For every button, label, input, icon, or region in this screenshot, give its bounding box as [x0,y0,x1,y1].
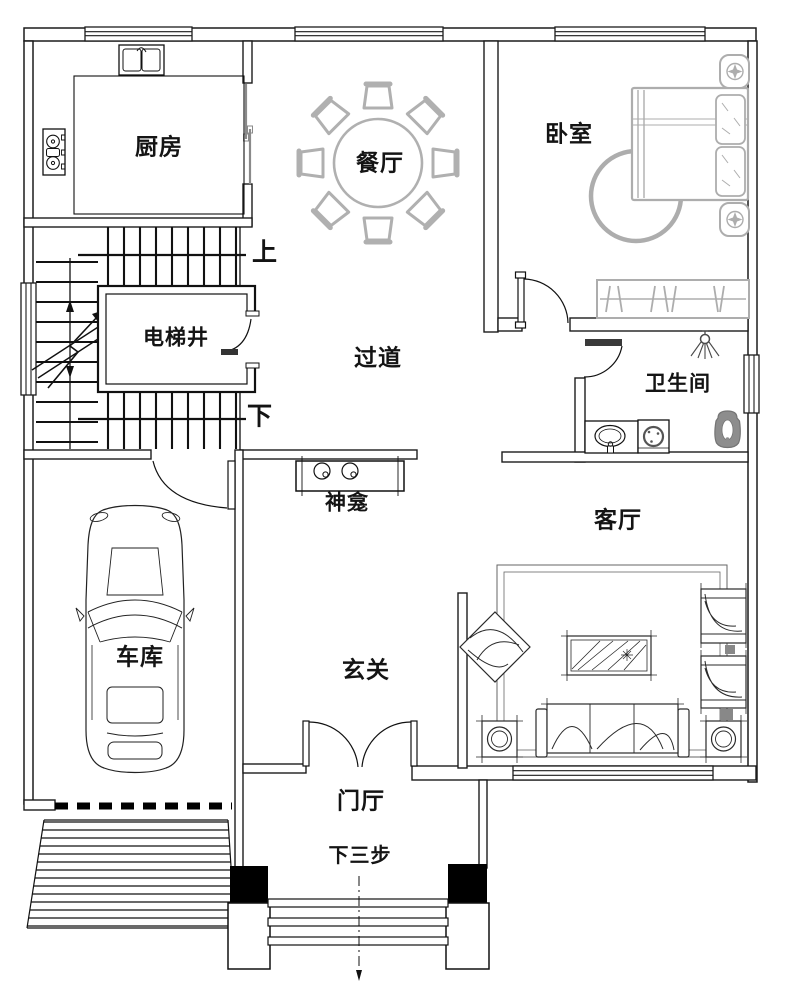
stair-down-arrow-icon [66,366,74,378]
elevator-door-leaf [221,349,238,355]
pillow-icon [716,147,745,196]
pillow-icon [716,95,745,144]
window-dining-icon [295,27,443,41]
bathroom-door-icon [584,339,622,377]
wardrobe-icon [597,280,749,318]
column-base [446,903,489,969]
kitchen-sink-icon [119,45,164,75]
porch-column [230,866,268,903]
kitchen-fixtures [43,45,244,214]
bed-icon [632,88,748,200]
room-label-bedroom: 卧室 [545,123,593,146]
entrance-double-door-icon [303,721,417,767]
window-stair-icon [21,283,36,395]
window-bathroom-icon [744,355,759,413]
floor-plan: 厨房 餐厅 卧室 电梯井 上 下 过道 卫生间 神龛 客厅 车库 玄关 门厅 下… [0,0,789,987]
sofa-icon [536,698,689,757]
side-table-icon [476,715,523,763]
sliding-door [244,84,253,184]
shower-icon [691,331,719,359]
stairs-up-label: 上 [252,241,278,266]
armchair-icon [701,650,746,714]
bathroom-sink-icon [585,421,638,453]
room-label-living: 客厅 [594,509,642,532]
stairs-down-label: 下 [247,405,273,430]
shrine-table-icon [296,456,404,496]
room-label-elevator: 电梯井 [143,328,209,349]
bedroom-door-icon [516,272,569,328]
window-kitchen-icon [85,27,192,41]
room-label-garage: 车库 [116,646,164,669]
coffee-table-icon [561,630,657,681]
accent-chair-icon [460,612,530,682]
porch-column [448,864,487,903]
car-icon [76,506,194,773]
room-label-entry: 玄关 [342,659,390,682]
room-label-bathroom: 卫生间 [645,374,711,395]
garage-door-icon [153,461,235,509]
column-base [228,903,270,969]
entrance-exterior [27,806,489,981]
steps-note-label: 下三步 [329,846,392,866]
center-line-icon [356,876,362,981]
stove-icon [43,129,65,175]
room-label-foyer: 门厅 [337,790,385,813]
room-label-corridor: 过道 [354,347,402,370]
room-label-dining: 餐厅 [356,152,404,175]
room-label-kitchen: 厨房 [135,136,183,159]
bedroom-furniture [591,55,749,318]
side-table-icon [700,715,747,763]
living-room-furniture [460,565,747,763]
nightstand-icon [720,55,749,88]
garage-ramp-icon [27,820,235,928]
armchair-icon [701,583,746,648]
window-living-icon [513,766,713,780]
room-label-shrine: 神龛 [325,493,369,514]
window-bedroom-icon [555,27,705,41]
floor-plan-drawing [0,0,789,987]
entrance-steps-icon [268,899,448,945]
nightstand-icon [720,203,749,236]
toilet-icon [715,411,740,448]
washing-machine-icon [638,420,669,453]
